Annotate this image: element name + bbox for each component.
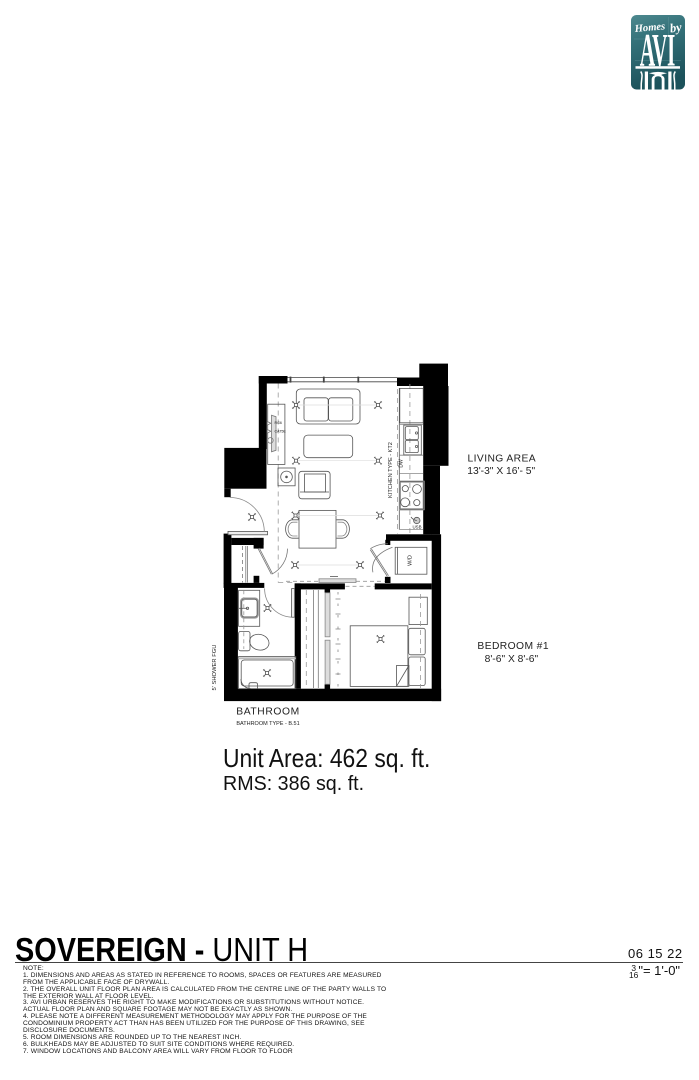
svg-text:CAT5E: CAT5E [275,429,287,433]
svg-text:W/D: W/D [408,555,414,566]
svg-text:LIVING AREA: LIVING AREA [468,454,537,465]
svg-text:8'-6" X 8'-6": 8'-6" X 8'-6" [485,654,539,665]
svg-text:USB: USB [412,525,421,530]
svg-text:BATHROOM: BATHROOM [236,706,300,717]
svg-text:13'-3" X 16'- 5": 13'-3" X 16'- 5" [467,466,535,477]
svg-text:DW: DW [399,459,405,468]
svg-text:KITCHEN TYPE - KT2: KITCHEN TYPE - KT2 [388,442,394,498]
svg-text:5' SHOWER FGU: 5' SHOWER FGU [212,645,218,691]
svg-text:RG6: RG6 [275,421,282,425]
svg-text:BEDROOM #1: BEDROOM #1 [477,641,549,652]
svg-text:BATHROOM TYPE - B.51: BATHROOM TYPE - B.51 [236,721,299,727]
